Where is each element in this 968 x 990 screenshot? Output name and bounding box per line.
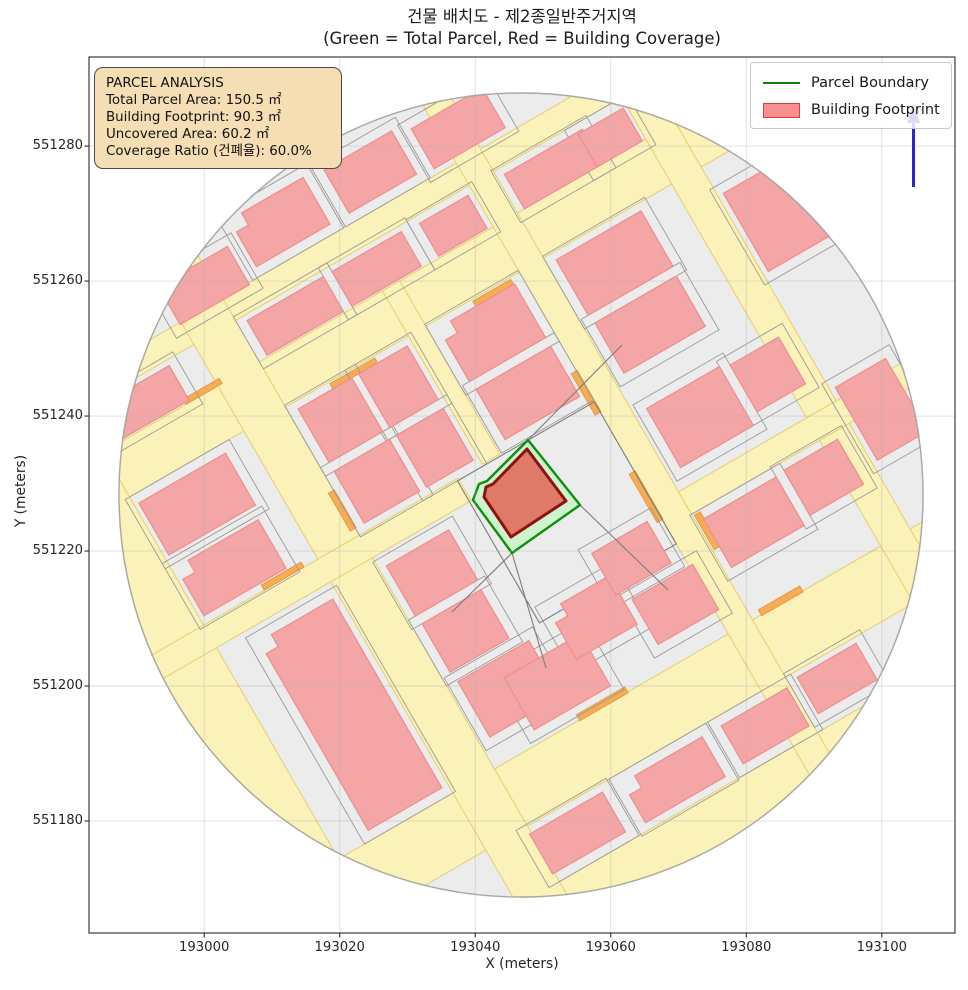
figure: N 건물 배치도 - 제2종일반주거지역 (Green = Total Parc… [0, 0, 968, 990]
x-tick-label: 193020 [315, 940, 365, 955]
y-tick-label: 551260 [23, 273, 83, 288]
y-axis-label: Y (meters) [13, 436, 29, 546]
y-tick-label: 551220 [23, 543, 83, 558]
legend: Parcel Boundary Building Footprint [750, 62, 952, 129]
plot-title-line2: (Green = Total Parcel, Red = Building Co… [89, 28, 955, 50]
y-tick-label: 551200 [23, 678, 83, 693]
legend-line-swatch [763, 82, 800, 84]
x-tick-label: 193040 [450, 940, 500, 955]
y-tick-label: 551180 [23, 813, 83, 828]
infobox-uncovered: Uncovered Area: 60.2 ㎡ [106, 126, 331, 143]
legend-patch-swatch [763, 103, 800, 118]
x-tick-label: 193100 [857, 940, 907, 955]
infobox-title: PARCEL ANALYSIS [106, 75, 331, 92]
legend-item-building-footprint: Building Footprint [763, 98, 943, 122]
legend-label: Building Footprint [811, 102, 940, 118]
y-tick-label: 551240 [23, 408, 83, 423]
y-tick-label: 551280 [23, 138, 83, 153]
x-axis-label: X (meters) [89, 956, 955, 972]
x-tick-label: 193000 [179, 940, 229, 955]
infobox-coverage-ratio: Coverage Ratio (건폐율): 60.0% [106, 143, 331, 160]
parcel-analysis-box: PARCEL ANALYSIS Total Parcel Area: 150.5… [94, 67, 342, 169]
x-tick-label: 193080 [721, 940, 771, 955]
infobox-total-area: Total Parcel Area: 150.5 ㎡ [106, 92, 331, 109]
plot-title-line1: 건물 배치도 - 제2종일반주거지역 [89, 6, 955, 28]
legend-label: Parcel Boundary [811, 75, 929, 91]
x-tick-label: 193060 [586, 940, 636, 955]
infobox-footprint: Building Footprint: 90.3 ㎡ [106, 109, 331, 126]
plot-title: 건물 배치도 - 제2종일반주거지역 (Green = Total Parcel… [89, 6, 955, 49]
legend-item-parcel-boundary: Parcel Boundary [763, 71, 943, 95]
